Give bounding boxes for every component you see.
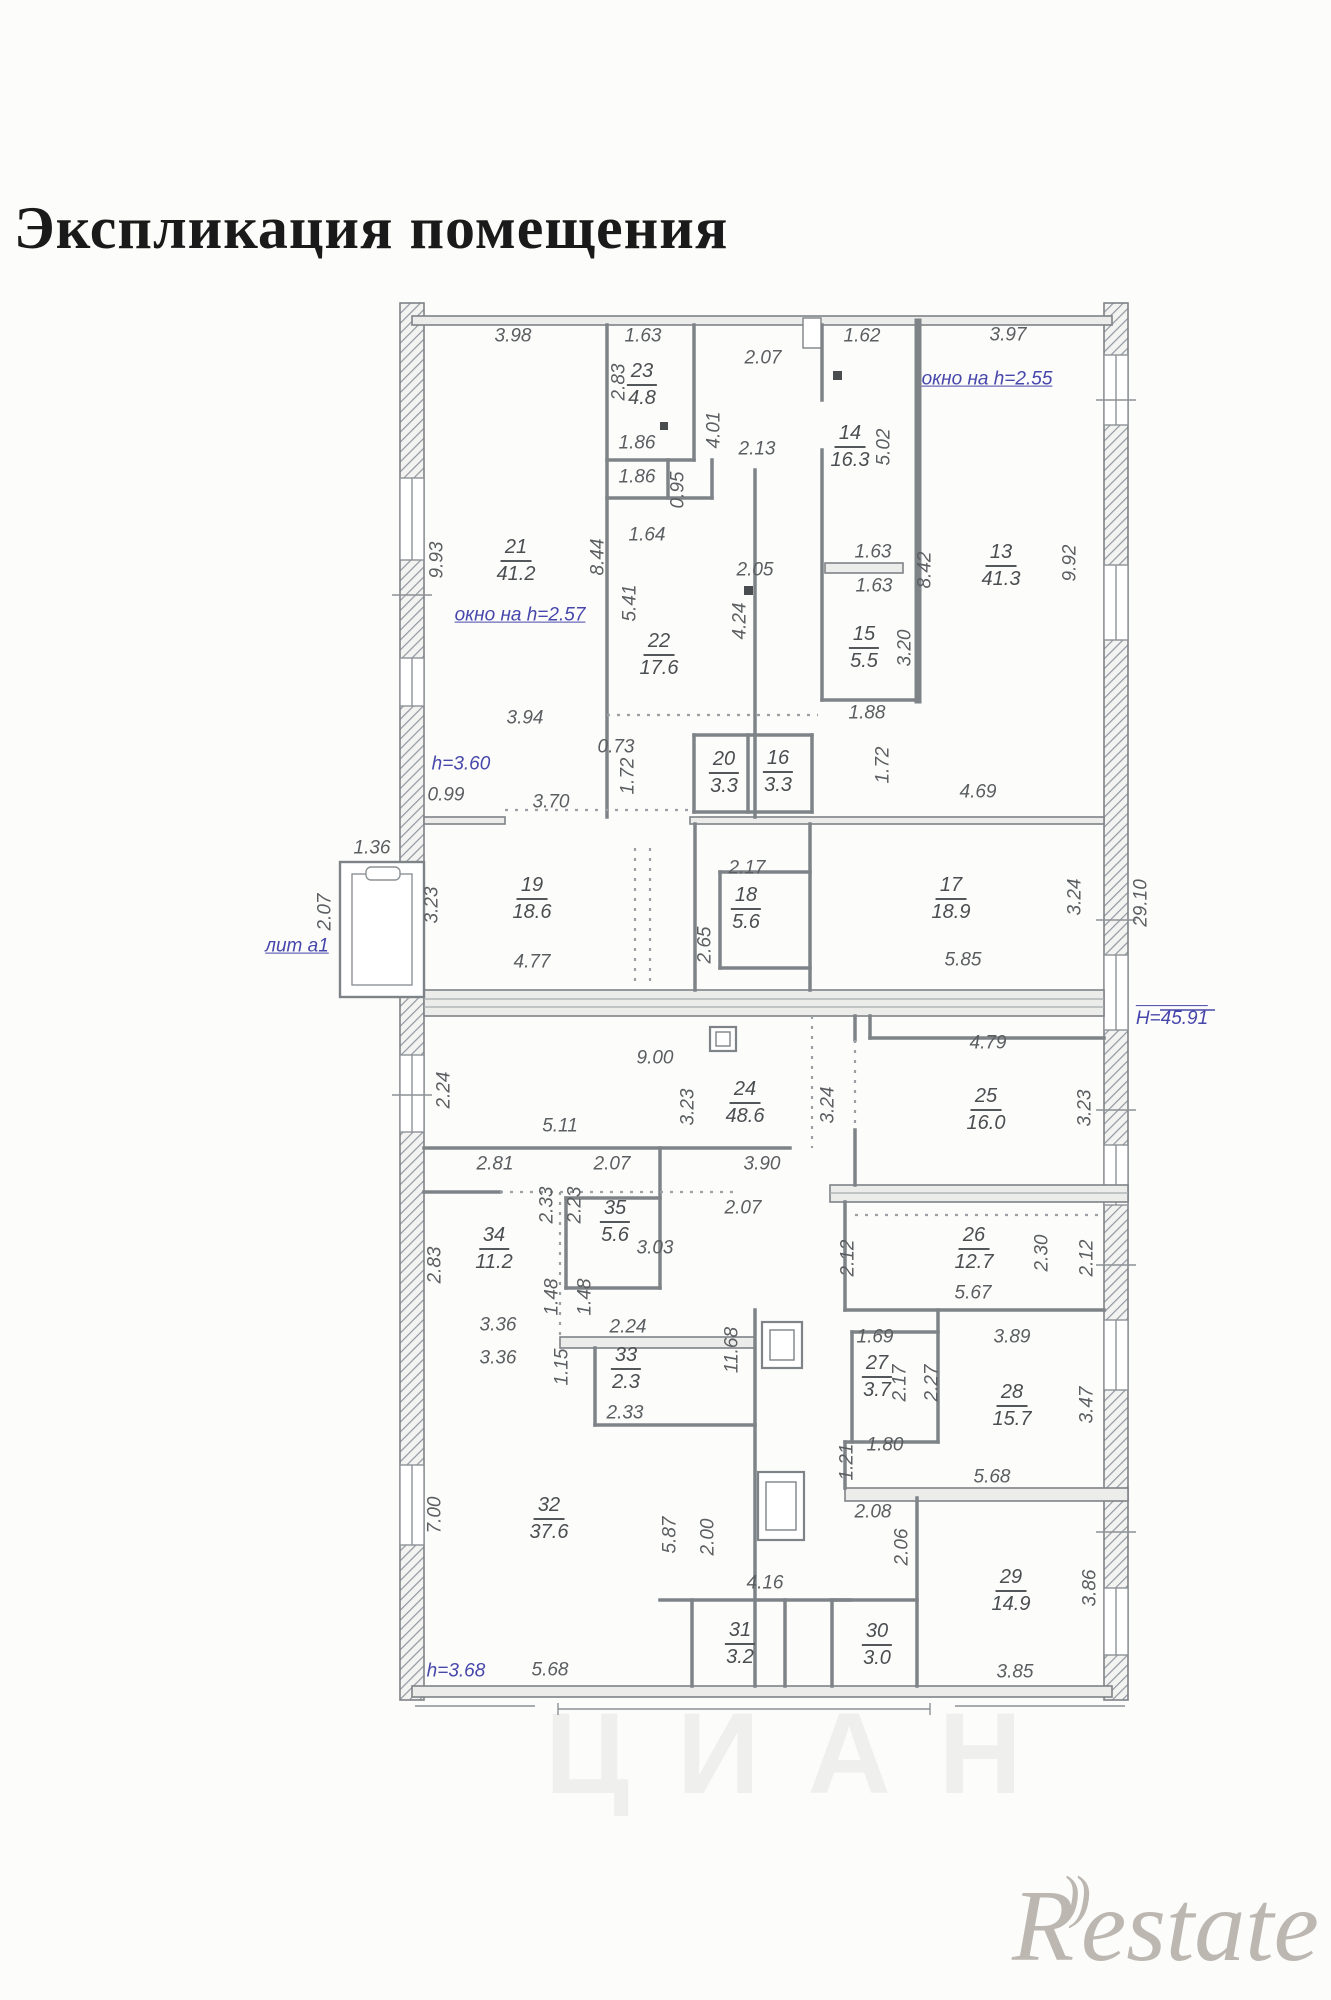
room-area: 16.0 [967, 1111, 1006, 1134]
dimension-label: 2.83 [426, 1247, 445, 1284]
dimension-label: 1.36 [354, 839, 391, 858]
room-number: 24 [730, 1079, 760, 1104]
dimension-label: 11.68 [723, 1327, 742, 1373]
room-label-25: 2516.0 [967, 1086, 1006, 1134]
room-label-13: 1341.3 [982, 542, 1021, 590]
room-label-16: 163.3 [763, 748, 793, 796]
dimension-label: 3.24 [819, 1087, 838, 1124]
dimension-label: 1.80 [867, 1436, 904, 1455]
room-area: 41.2 [497, 562, 536, 585]
dimension-label: 8.44 [589, 539, 608, 576]
dimension-label: 4.24 [731, 603, 750, 640]
annotation-note: лит а1 [265, 936, 329, 959]
logo-text: estate [1081, 1870, 1319, 1983]
room-area: 18.9 [932, 900, 971, 923]
room-number: 25 [971, 1086, 1001, 1111]
dimension-label: 1.86 [619, 468, 656, 487]
dimension-label: 2.08 [855, 1503, 892, 1522]
annotation-note: h=3.60 [432, 754, 491, 777]
room-label-27: 273.7 [862, 1353, 892, 1401]
dimension-label: 2.05 [737, 561, 774, 580]
dimension-label: 5.41 [621, 585, 640, 622]
room-number: 33 [611, 1345, 641, 1370]
dimension-label: 5.85 [945, 951, 982, 970]
room-area: 16.3 [831, 448, 870, 471]
dimension-label: 29.10 [1132, 879, 1151, 927]
room-area: 5.6 [732, 910, 760, 933]
room-label-15: 155.5 [849, 624, 879, 672]
dimension-label: 3.24 [1066, 879, 1085, 916]
dimension-label: 2.27 [923, 1365, 942, 1402]
room-area: 3.3 [764, 773, 792, 796]
dimension-label: 1.64 [629, 526, 666, 545]
room-area: 14.9 [992, 1592, 1031, 1615]
dimension-label: 4.69 [960, 783, 997, 802]
annotation-note: окно на h=2.55 [922, 369, 1053, 392]
dimension-label: 2.30 [1033, 1235, 1052, 1272]
dimension-label: 1.21 [838, 1444, 857, 1481]
room-area: 3.3 [710, 774, 738, 797]
dimension-label: 2.83 [610, 364, 629, 401]
dimension-label: 5.11 [542, 1117, 578, 1136]
room-label-30: 303.0 [862, 1621, 892, 1669]
dimension-label: 9.00 [637, 1049, 674, 1068]
room-number: 27 [862, 1353, 892, 1378]
room-label-29: 2914.9 [992, 1567, 1031, 1615]
room-number: 19 [517, 875, 547, 900]
dimension-label: 5.87 [661, 1517, 680, 1554]
room-label-35: 355.6 [600, 1198, 630, 1246]
room-label-18: 185.6 [731, 885, 761, 933]
room-area: 11.2 [475, 1250, 512, 1273]
watermark-cian: ЦИАН [545, 1688, 1070, 1820]
room-number: 16 [763, 748, 793, 773]
dimension-label: 2.12 [1078, 1240, 1097, 1277]
dimension-label: 0.73 [598, 738, 635, 757]
room-number: 29 [996, 1567, 1026, 1592]
room-number: 34 [479, 1225, 509, 1250]
room-area: 18.6 [513, 900, 552, 923]
room-area: 15.7 [993, 1407, 1032, 1430]
dimension-label: 2.81 [477, 1155, 514, 1174]
dimension-label: 2.24 [610, 1318, 647, 1337]
room-number: 14 [835, 423, 865, 448]
room-label-17: 1718.9 [932, 875, 971, 923]
dimension-label: 0.95 [669, 472, 688, 509]
room-area: 12.7 [955, 1250, 994, 1273]
dimension-label: 1.72 [619, 758, 638, 795]
room-area: 48.6 [726, 1104, 765, 1127]
dimension-label: 4.01 [705, 412, 724, 449]
room-area: 41.3 [982, 567, 1021, 590]
dimension-label: 2.07 [725, 1199, 762, 1218]
dimension-label: 3.20 [896, 630, 915, 667]
dimension-label: 2.00 [699, 1519, 718, 1556]
room-number: 13 [986, 542, 1016, 567]
dimension-label: 3.89 [994, 1328, 1031, 1347]
room-area: 5.6 [601, 1223, 629, 1246]
room-label-26: 2612.7 [955, 1225, 994, 1273]
dimension-label: 1.63 [856, 577, 893, 596]
dimension-label: 2.07 [594, 1155, 631, 1174]
dimension-label: 3.36 [480, 1316, 517, 1335]
room-label-31: 313.2 [725, 1620, 755, 1668]
room-number: 26 [959, 1225, 989, 1250]
dimension-label: 2.13 [739, 440, 776, 459]
room-number: 17 [936, 875, 966, 900]
dimension-label: 5.68 [532, 1661, 569, 1680]
room-number: 20 [709, 749, 739, 774]
room-area: 37.6 [530, 1520, 569, 1543]
room-label-34: 3411.2 [475, 1225, 512, 1273]
room-label-14: 1416.3 [831, 423, 870, 471]
watermark-restate-logo: R))estate [1012, 1868, 1319, 1978]
room-label-32: 3237.6 [530, 1495, 569, 1543]
dimension-label: 3.98 [495, 327, 532, 346]
dimension-label: 2.06 [893, 1529, 912, 1566]
dimension-label: 2.33 [607, 1404, 644, 1423]
room-label-33: 332.3 [611, 1345, 641, 1393]
room-number: 32 [534, 1495, 564, 1520]
room-area: 3.7 [863, 1378, 891, 1401]
room-area: 3.0 [863, 1646, 891, 1669]
room-area: 5.5 [850, 649, 878, 672]
room-number: 35 [600, 1198, 630, 1223]
dimension-label: 9.93 [428, 542, 447, 579]
dimension-label: 5.02 [875, 429, 894, 466]
room-label-22: 2217.6 [640, 631, 679, 679]
dimension-label: 9.92 [1061, 545, 1080, 582]
dimension-label: 3.86 [1081, 1570, 1100, 1607]
dimension-label: 1.72 [874, 747, 893, 784]
dimension-label: 1.48 [576, 1279, 595, 1316]
dimension-label: 3.90 [744, 1155, 781, 1174]
dimension-label: 4.77 [514, 953, 551, 972]
annotation-note: Н=45.91 [1136, 1005, 1208, 1031]
room-number: 22 [644, 631, 674, 656]
room-number: 31 [725, 1620, 755, 1645]
annotation-note: окно на h=2.57 [455, 605, 586, 628]
dimension-label: 2.65 [696, 927, 715, 964]
dimension-label: 3.97 [990, 326, 1027, 345]
dimension-label: 3.03 [637, 1239, 674, 1258]
room-label-23: 234.8 [627, 361, 657, 409]
dimension-label: 1.63 [855, 543, 892, 562]
dimension-label: 2.07 [745, 349, 782, 368]
dimension-label: 8.42 [916, 552, 935, 589]
dimension-label: 7.00 [426, 1497, 445, 1534]
room-label-19: 1918.6 [513, 875, 552, 923]
dimension-label: 1.62 [844, 327, 881, 346]
dimension-label: 2.12 [839, 1240, 858, 1277]
dimension-label: 2.07 [316, 894, 335, 931]
room-area: 2.3 [612, 1370, 640, 1393]
room-label-21: 2141.2 [497, 537, 536, 585]
room-number: 21 [501, 537, 531, 562]
room-number: 30 [862, 1621, 892, 1646]
dimension-label: 2.17 [729, 859, 766, 878]
room-area: 4.8 [628, 386, 656, 409]
room-label-20: 203.3 [709, 749, 739, 797]
dimension-label: 2.24 [435, 1072, 454, 1109]
room-area: 17.6 [640, 656, 679, 679]
dimension-label: 1.63 [625, 327, 662, 346]
dimension-label: 2.23 [566, 1187, 585, 1224]
dimension-label: 3.70 [533, 793, 570, 812]
dimension-label: 5.68 [974, 1468, 1011, 1487]
room-number: 28 [997, 1382, 1027, 1407]
dimension-label: 4.16 [747, 1574, 784, 1593]
dimension-label: 3.36 [480, 1349, 517, 1368]
dimension-label: 3.23 [1076, 1090, 1095, 1127]
room-number: 18 [731, 885, 761, 910]
room-number: 15 [849, 624, 879, 649]
logo-arcs-icon: )) [1060, 1864, 1083, 1929]
dimension-label: 1.69 [857, 1328, 894, 1347]
dimension-label: 5.67 [955, 1284, 992, 1303]
dimension-label: 2.33 [538, 1187, 557, 1224]
dimension-label: 3.23 [679, 1089, 698, 1126]
room-label-24: 2448.6 [726, 1079, 765, 1127]
dimension-label: 0.99 [428, 786, 465, 805]
dimension-label: 3.94 [507, 709, 544, 728]
dimension-label: 1.48 [543, 1279, 562, 1316]
dimension-label: 1.88 [849, 704, 886, 723]
dimension-label: 2.17 [891, 1365, 910, 1402]
dimension-label: 1.86 [619, 434, 656, 453]
dimension-label: 1.15 [553, 1349, 572, 1386]
floor-plan-page: Экспликация помещения [0, 0, 1331, 2000]
room-label-28: 2815.7 [993, 1382, 1032, 1430]
dimension-label: 3.47 [1078, 1387, 1097, 1424]
room-area: 3.2 [726, 1645, 754, 1668]
annotation-note: h=3.68 [427, 1661, 486, 1684]
dimension-label: 3.23 [423, 887, 442, 924]
dimension-label: 4.79 [970, 1034, 1007, 1053]
room-number: 23 [627, 361, 657, 386]
dimension-label: 3.85 [997, 1663, 1034, 1682]
